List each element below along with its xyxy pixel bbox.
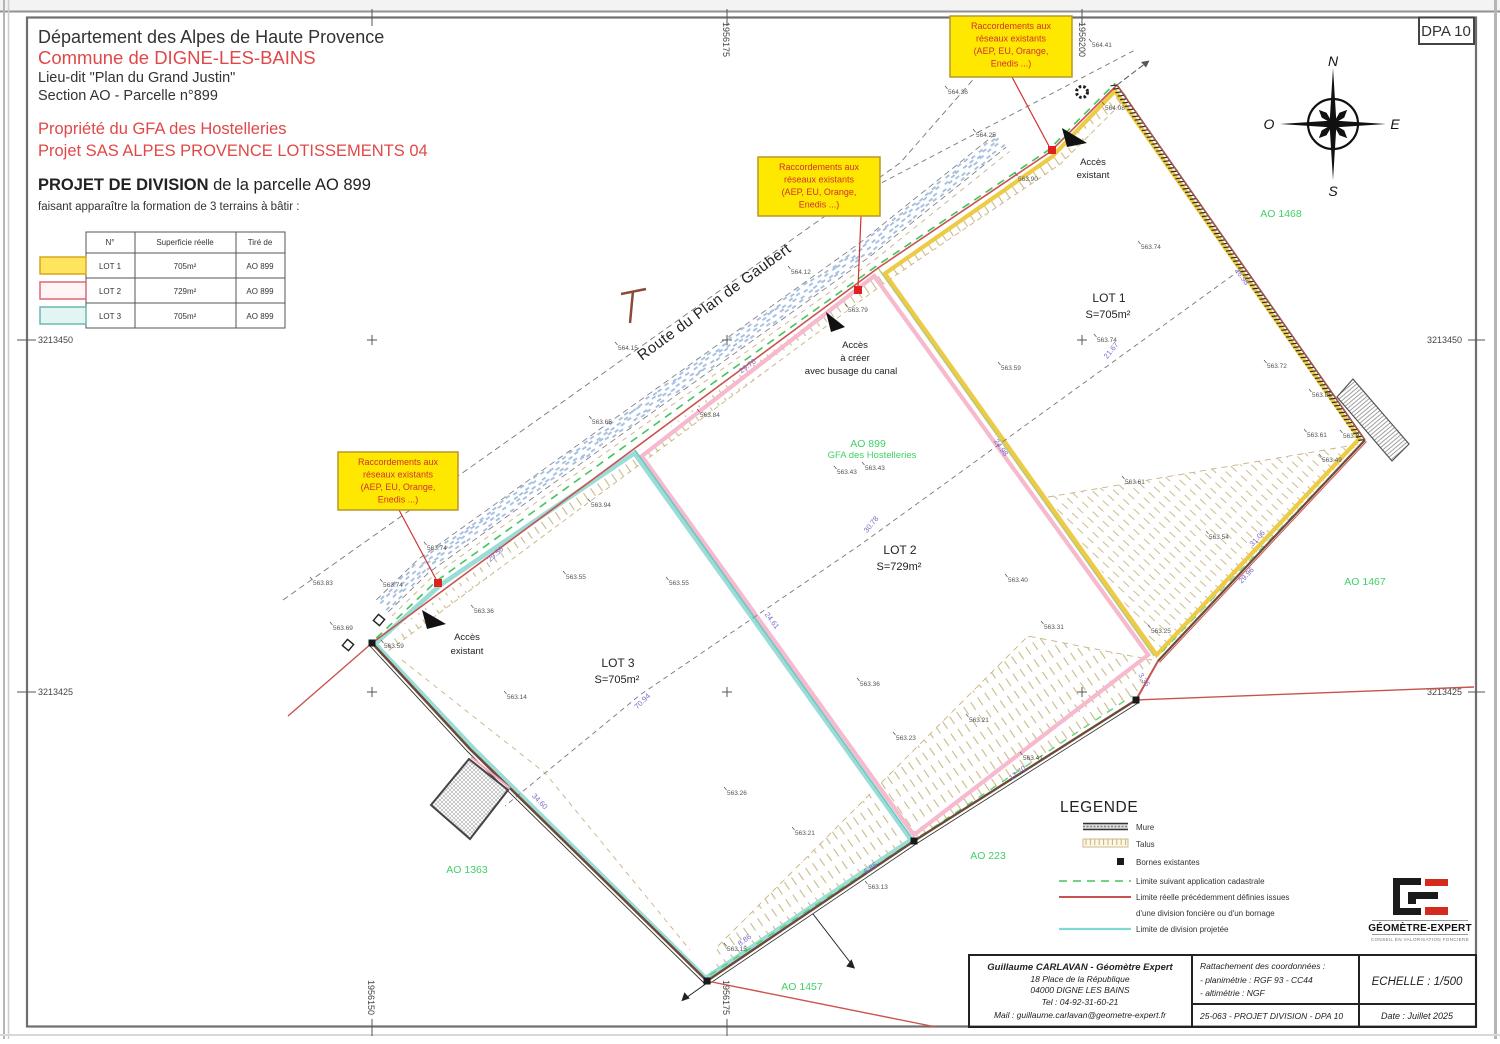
svg-text:563.36: 563.36 bbox=[860, 681, 880, 688]
svg-text:563.31: 563.31 bbox=[1044, 624, 1064, 631]
svg-text:AO 899: AO 899 bbox=[246, 262, 274, 271]
svg-text:LOT 2: LOT 2 bbox=[99, 287, 122, 296]
svg-text:Projet SAS ALPES PROVENCE LOTI: Projet SAS ALPES PROVENCE LOTISSEMENTS 0… bbox=[38, 142, 428, 160]
svg-text:GFA des Hostelleries: GFA des Hostelleries bbox=[828, 450, 917, 461]
svg-text:729m²: 729m² bbox=[174, 287, 197, 296]
svg-text:563.41: 563.41 bbox=[1023, 755, 1043, 762]
svg-text:Accès: Accès bbox=[1080, 157, 1106, 168]
svg-text:563.55: 563.55 bbox=[566, 574, 586, 581]
svg-text:Lieu-dit "Plan du Grand Justin: Lieu-dit "Plan du Grand Justin" bbox=[38, 70, 235, 86]
svg-text:563.23: 563.23 bbox=[896, 735, 916, 742]
svg-text:avec busage du canal: avec busage du canal bbox=[805, 366, 897, 377]
svg-text:S: S bbox=[1328, 183, 1338, 199]
svg-text:563.59: 563.59 bbox=[384, 643, 404, 650]
svg-text:E: E bbox=[1390, 116, 1400, 132]
svg-text:réseaux existants: réseaux existants bbox=[976, 34, 1047, 44]
svg-text:563.94: 563.94 bbox=[591, 502, 611, 509]
svg-text:1956175: 1956175 bbox=[721, 22, 731, 57]
svg-text:réseaux existants: réseaux existants bbox=[784, 175, 855, 185]
svg-text:Commune de DIGNE-LES-BAINS: Commune de DIGNE-LES-BAINS bbox=[38, 47, 316, 68]
svg-text:Propriété du GFA des Hosteller: Propriété du GFA des Hostelleries bbox=[38, 120, 287, 138]
svg-text:S=729m²: S=729m² bbox=[877, 561, 922, 573]
svg-text:Tel : 04-92-31-60-21: Tel : 04-92-31-60-21 bbox=[1042, 997, 1119, 1007]
svg-text:AO 899: AO 899 bbox=[246, 312, 274, 321]
svg-text:Accès: Accès bbox=[842, 340, 868, 351]
svg-text:563.69: 563.69 bbox=[333, 625, 353, 632]
svg-text:563.72: 563.72 bbox=[1267, 363, 1287, 370]
svg-text:04000 DIGNE LES BAINS: 04000 DIGNE LES BAINS bbox=[1030, 985, 1130, 995]
svg-text:AO 1363: AO 1363 bbox=[446, 864, 488, 876]
svg-text:Mure: Mure bbox=[1136, 823, 1155, 832]
svg-text:d'une division foncière ou d'u: d'une division foncière ou d'un bornage bbox=[1136, 909, 1275, 918]
svg-text:Raccordements aux: Raccordements aux bbox=[971, 21, 1052, 31]
svg-text:(AEP, EU, Orange,: (AEP, EU, Orange, bbox=[361, 482, 436, 492]
svg-text:563.74: 563.74 bbox=[427, 545, 447, 552]
svg-text:existant: existant bbox=[451, 646, 484, 657]
svg-text:Enedis ...): Enedis ...) bbox=[799, 200, 840, 210]
svg-text:Date : Juillet 2025: Date : Juillet 2025 bbox=[1381, 1011, 1454, 1021]
svg-text:564.08: 564.08 bbox=[1105, 105, 1125, 112]
svg-text:Superficie réelle: Superficie réelle bbox=[156, 238, 214, 247]
svg-text:Raccordements aux: Raccordements aux bbox=[779, 162, 860, 172]
svg-text:Guillaume CARLAVAN - Géomètre: Guillaume CARLAVAN - Géomètre Expert bbox=[987, 962, 1173, 973]
svg-text:N: N bbox=[1328, 53, 1339, 69]
svg-text:Limite réelle précédemment déf: Limite réelle précédemment définies issu… bbox=[1136, 893, 1289, 902]
svg-text:LOT 3: LOT 3 bbox=[601, 656, 634, 670]
svg-text:AO 899: AO 899 bbox=[246, 287, 274, 296]
svg-text:25-063 - PROJET DIVISION - DPA: 25-063 - PROJET DIVISION - DPA 10 bbox=[1199, 1011, 1343, 1021]
svg-text:- planimétrie : RGF 93 - CC44: - planimétrie : RGF 93 - CC44 bbox=[1200, 975, 1313, 985]
svg-text:3213425: 3213425 bbox=[38, 687, 73, 697]
svg-text:Bornes existantes: Bornes existantes bbox=[1136, 858, 1200, 867]
svg-text:Rattachement des coordonnées :: Rattachement des coordonnées : bbox=[1200, 961, 1326, 971]
svg-text:Enedis ...): Enedis ...) bbox=[378, 495, 419, 505]
svg-text:Mail : guillaume.carlavan@geom: Mail : guillaume.carlavan@geometre-exper… bbox=[994, 1010, 1167, 1020]
svg-text:AO 1467: AO 1467 bbox=[1344, 576, 1386, 588]
svg-text:563.74: 563.74 bbox=[1141, 244, 1161, 251]
svg-text:564.15: 564.15 bbox=[618, 345, 638, 352]
svg-text:DPA 10: DPA 10 bbox=[1421, 23, 1471, 40]
svg-text:3213450: 3213450 bbox=[38, 335, 73, 345]
svg-text:563.13: 563.13 bbox=[868, 884, 888, 891]
svg-text:564.25: 564.25 bbox=[976, 132, 996, 139]
svg-text:LEGENDE: LEGENDE bbox=[1060, 799, 1138, 816]
svg-text:563.85: 563.85 bbox=[1312, 392, 1332, 399]
svg-text:563.74: 563.74 bbox=[383, 582, 403, 589]
svg-text:563.55: 563.55 bbox=[669, 580, 689, 587]
svg-text:3213450: 3213450 bbox=[1427, 335, 1462, 345]
svg-text:Département des Alpes de Haute: Département des Alpes de Haute Provence bbox=[38, 27, 384, 47]
svg-text:563.65: 563.65 bbox=[592, 419, 612, 426]
svg-text:Section AO - Parcelle n°899: Section AO - Parcelle n°899 bbox=[38, 88, 218, 104]
svg-text:Limite suivant application cad: Limite suivant application cadastrale bbox=[1136, 877, 1265, 886]
svg-text:Enedis ...): Enedis ...) bbox=[991, 59, 1032, 69]
svg-text:ECHELLE : 1/500: ECHELLE : 1/500 bbox=[1372, 976, 1463, 988]
svg-text:LOT 2: LOT 2 bbox=[883, 543, 916, 557]
svg-text:1956150: 1956150 bbox=[366, 980, 376, 1015]
svg-text:Raccordements aux: Raccordements aux bbox=[358, 457, 439, 467]
svg-text:563.83: 563.83 bbox=[313, 580, 333, 587]
svg-text:563.14: 563.14 bbox=[507, 694, 527, 701]
svg-text:LOT 3: LOT 3 bbox=[99, 312, 122, 321]
svg-text:AO 1457: AO 1457 bbox=[781, 981, 823, 993]
svg-text:réseaux existants: réseaux existants bbox=[363, 470, 434, 480]
svg-text:564.36: 564.36 bbox=[948, 89, 968, 96]
svg-text:564.41: 564.41 bbox=[1092, 42, 1112, 49]
svg-text:CONSEIL EN VALORISATION FONCIE: CONSEIL EN VALORISATION FONCIERE bbox=[1371, 937, 1469, 942]
svg-text:563.61: 563.61 bbox=[1125, 479, 1145, 486]
svg-text:à créer: à créer bbox=[840, 353, 870, 364]
svg-text:564.12: 564.12 bbox=[791, 269, 811, 276]
svg-text:(AEP, EU, Orange,: (AEP, EU, Orange, bbox=[782, 187, 857, 197]
svg-text:(AEP, EU, Orange,: (AEP, EU, Orange, bbox=[974, 46, 1049, 56]
svg-text:18 Place de la République: 18 Place de la République bbox=[1030, 974, 1130, 984]
svg-text:563.59: 563.59 bbox=[1001, 365, 1021, 372]
svg-text:705m²: 705m² bbox=[174, 262, 197, 271]
svg-text:N°: N° bbox=[106, 238, 115, 247]
svg-text:705m²: 705m² bbox=[174, 312, 197, 321]
svg-text:Limite de division projetée: Limite de division projetée bbox=[1136, 925, 1229, 934]
svg-text:LOT 1: LOT 1 bbox=[99, 262, 122, 271]
svg-text:563.43: 563.43 bbox=[865, 465, 885, 472]
svg-text:563.79: 563.79 bbox=[848, 307, 868, 314]
svg-text:Talus: Talus bbox=[1136, 840, 1155, 849]
svg-text:Accès: Accès bbox=[454, 632, 480, 643]
svg-text:S=705m²: S=705m² bbox=[595, 674, 640, 686]
svg-text:- altimétrie : NGF: - altimétrie : NGF bbox=[1200, 988, 1266, 998]
svg-text:563.21: 563.21 bbox=[969, 717, 989, 724]
svg-text:O: O bbox=[1264, 116, 1275, 132]
svg-text:563.84: 563.84 bbox=[700, 412, 720, 419]
svg-text:563.36: 563.36 bbox=[474, 608, 494, 615]
svg-text:563.49: 563.49 bbox=[1322, 457, 1342, 464]
svg-text:faisant apparaître la formatio: faisant apparaître la formation de 3 ter… bbox=[38, 201, 299, 213]
svg-text:563.61: 563.61 bbox=[1307, 432, 1327, 439]
svg-text:GÉOMÈTRE-EXPERT: GÉOMÈTRE-EXPERT bbox=[1368, 921, 1472, 934]
svg-text:563.54: 563.54 bbox=[1209, 534, 1229, 541]
svg-text:PROJET DE DIVISION de la parce: PROJET DE DIVISION de la parcelle AO 899 bbox=[38, 176, 371, 194]
svg-text:563.21: 563.21 bbox=[795, 830, 815, 837]
svg-text:563.90: 563.90 bbox=[1018, 176, 1038, 183]
svg-text:563.40: 563.40 bbox=[1008, 577, 1028, 584]
svg-text:AO 1468: AO 1468 bbox=[1260, 208, 1302, 220]
svg-text:AO 899: AO 899 bbox=[850, 438, 886, 450]
svg-text:LOT 1: LOT 1 bbox=[1092, 291, 1125, 305]
svg-text:563.25: 563.25 bbox=[1151, 628, 1171, 635]
svg-text:563.15: 563.15 bbox=[727, 946, 747, 953]
svg-text:S=705m²: S=705m² bbox=[1086, 309, 1131, 321]
svg-text:AO 223: AO 223 bbox=[970, 850, 1006, 862]
svg-text:existant: existant bbox=[1077, 170, 1110, 181]
svg-text:563.26: 563.26 bbox=[727, 790, 747, 797]
svg-text:563.43: 563.43 bbox=[837, 469, 857, 476]
svg-text:Tiré de: Tiré de bbox=[248, 238, 273, 247]
svg-text:563.8: 563.8 bbox=[1343, 433, 1360, 440]
svg-text:1956200: 1956200 bbox=[1077, 22, 1087, 57]
